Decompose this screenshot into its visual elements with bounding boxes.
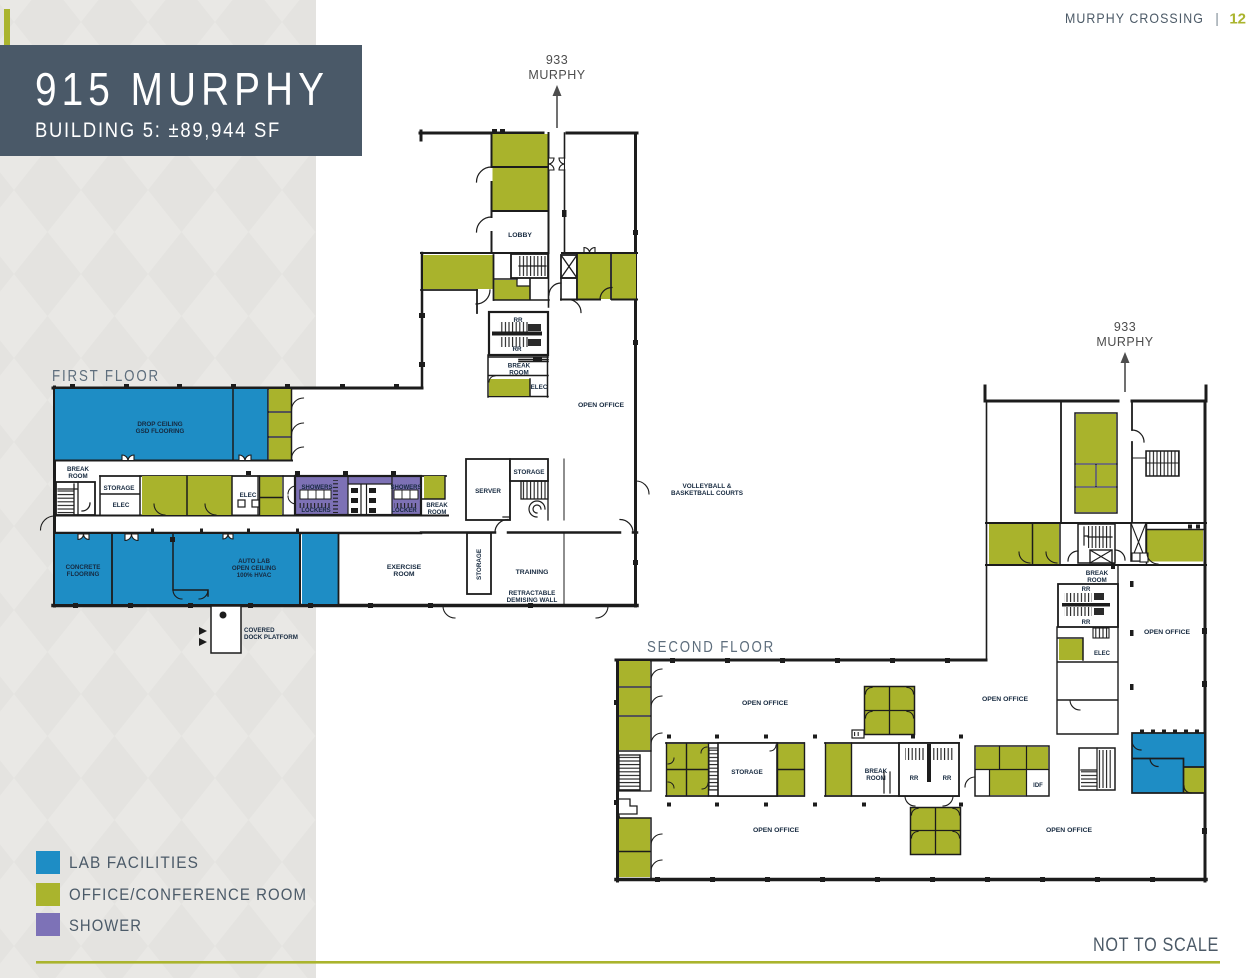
svg-text:GSD FLOORING: GSD FLOORING <box>136 428 185 435</box>
svg-text:DROP CEILING: DROP CEILING <box>137 421 182 428</box>
svg-text:DOCK PLATFORM: DOCK PLATFORM <box>244 634 298 641</box>
svg-text:OPEN OFFICE: OPEN OFFICE <box>742 700 789 707</box>
svg-text:BASKETBALL COURTS: BASKETBALL COURTS <box>671 490 744 497</box>
svg-text:STORAGE: STORAGE <box>513 469 544 476</box>
svg-text:ELEC: ELEC <box>531 384 548 391</box>
svg-text:MURPHY CROSSING: MURPHY CROSSING <box>1065 11 1204 26</box>
svg-text:933: 933 <box>546 53 568 67</box>
svg-text:STORAGE: STORAGE <box>476 549 483 580</box>
svg-text:MURPHY: MURPHY <box>528 68 585 82</box>
svg-text:100% HVAC: 100% HVAC <box>237 572 272 579</box>
svg-text:NOT TO SCALE: NOT TO SCALE <box>1093 934 1219 956</box>
svg-text:STORAGE: STORAGE <box>731 769 763 776</box>
svg-text:OPEN OFFICE: OPEN OFFICE <box>982 696 1029 703</box>
svg-text:STORAGE: STORAGE <box>103 485 134 492</box>
svg-text:SHOWERS: SHOWERS <box>390 485 421 491</box>
svg-text:RETRACTABLE: RETRACTABLE <box>509 590 556 597</box>
svg-text:BREAK: BREAK <box>1086 570 1109 577</box>
svg-text:FLOORING: FLOORING <box>67 571 100 578</box>
svg-text:12: 12 <box>1229 11 1246 28</box>
svg-text:BREAK: BREAK <box>67 466 90 473</box>
svg-text:RR: RR <box>943 776 952 782</box>
svg-text:OPEN OFFICE: OPEN OFFICE <box>1144 629 1191 636</box>
svg-text:RR: RR <box>910 776 919 782</box>
svg-text:ELEC: ELEC <box>113 502 130 509</box>
svg-text:DEMISING WALL: DEMISING WALL <box>507 597 558 604</box>
svg-text:VOLLEYBALL &: VOLLEYBALL & <box>683 483 732 490</box>
svg-text:RR: RR <box>512 346 522 353</box>
svg-text:CONCRETE: CONCRETE <box>66 564 101 571</box>
svg-text:ROOM: ROOM <box>1087 577 1107 584</box>
svg-text:ROOM: ROOM <box>866 775 886 782</box>
svg-text:ELEC: ELEC <box>240 492 257 499</box>
svg-text:IDF: IDF <box>1033 783 1043 789</box>
svg-text:OPEN OFFICE: OPEN OFFICE <box>753 827 800 834</box>
svg-text:933: 933 <box>1114 320 1136 334</box>
svg-text:ROOM: ROOM <box>393 571 414 578</box>
svg-text:RR: RR <box>513 317 523 324</box>
svg-text:LOBBY: LOBBY <box>508 232 532 239</box>
svg-text:MURPHY: MURPHY <box>1096 335 1153 349</box>
svg-text:TRAINING: TRAINING <box>516 569 549 576</box>
svg-text:SHOWER: SHOWER <box>69 916 142 935</box>
svg-text:915 MURPHY: 915 MURPHY <box>35 63 329 115</box>
svg-text:EXERCISE: EXERCISE <box>387 564 422 571</box>
svg-text:SECOND FLOOR: SECOND FLOOR <box>647 639 775 656</box>
svg-text:|: | <box>1215 11 1219 26</box>
svg-text:ROOM: ROOM <box>68 473 87 480</box>
svg-text:BUILDING 5: ±89,944 SF: BUILDING 5: ±89,944 SF <box>35 119 281 142</box>
svg-text:OPEN OFFICE: OPEN OFFICE <box>1046 827 1093 834</box>
svg-text:LOCKER: LOCKER <box>391 508 417 514</box>
svg-text:RR: RR <box>1082 587 1091 593</box>
svg-text:OFFICE/CONFERENCE ROOM: OFFICE/CONFERENCE ROOM <box>69 885 307 904</box>
svg-text:RR: RR <box>1082 620 1091 626</box>
svg-text:LAB FACILITIES: LAB FACILITIES <box>69 853 199 872</box>
svg-text:BREAK: BREAK <box>508 363 531 370</box>
svg-text:AUTO LAB: AUTO LAB <box>238 558 270 565</box>
svg-text:COVERED: COVERED <box>244 627 275 634</box>
svg-text:ELEC: ELEC <box>1094 651 1111 657</box>
svg-text:OPEN OFFICE: OPEN OFFICE <box>578 402 625 409</box>
svg-text:SHOWERS: SHOWERS <box>301 485 332 491</box>
svg-text:OPEN CEILING: OPEN CEILING <box>232 565 277 572</box>
svg-text:LOCKERS: LOCKERS <box>301 508 330 514</box>
svg-text:SERVER: SERVER <box>475 488 501 495</box>
svg-text:FIRST FLOOR: FIRST FLOOR <box>52 368 160 385</box>
svg-text:BREAK: BREAK <box>426 503 448 509</box>
svg-text:ROOM: ROOM <box>428 510 447 516</box>
